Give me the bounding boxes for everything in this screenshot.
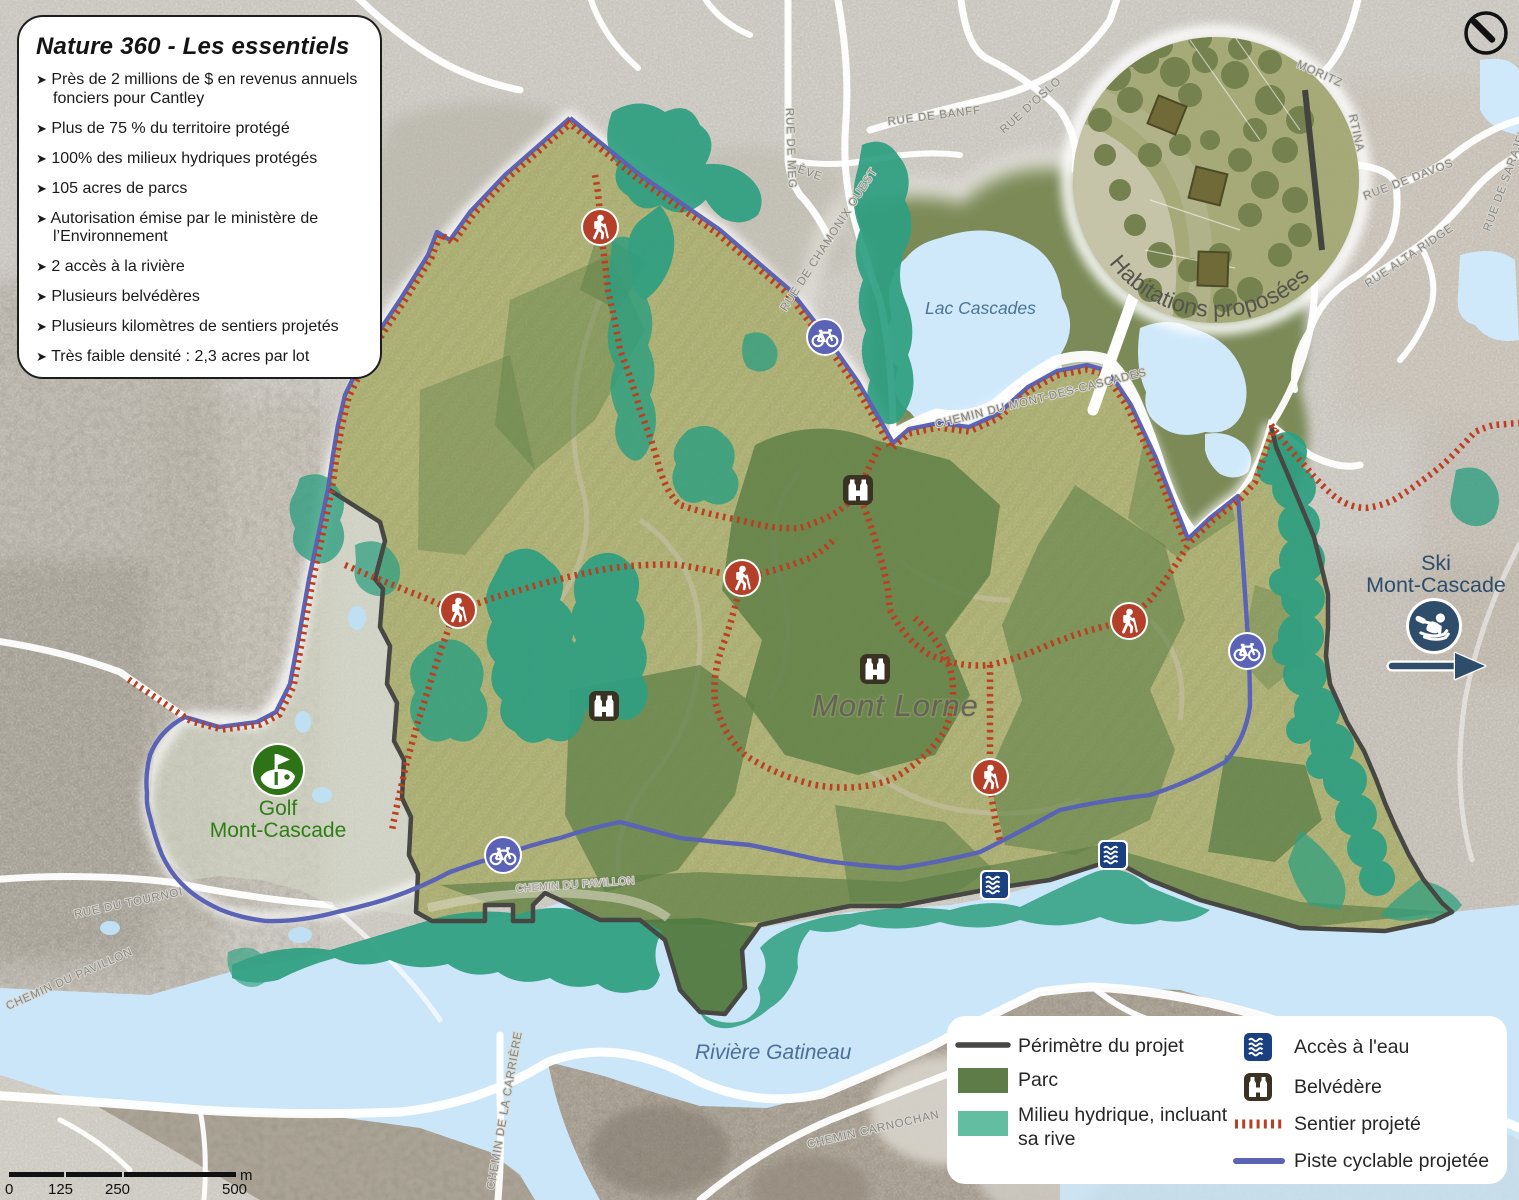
svg-text:Mont Lorne: Mont Lorne [812, 688, 979, 723]
svg-text:125: 125 [48, 1181, 73, 1198]
svg-text:250: 250 [105, 1181, 130, 1198]
svg-text:Golf: Golf [259, 797, 298, 820]
svg-text:Mont-Cascade: Mont-Cascade [210, 819, 347, 842]
svg-text:Rivière Gatineau: Rivière Gatineau [695, 1041, 852, 1064]
svg-text:Ski: Ski [1421, 551, 1451, 575]
svg-text:m: m [240, 1167, 253, 1184]
svg-text:Mont-Cascade: Mont-Cascade [1366, 573, 1506, 597]
svg-text:0: 0 [5, 1181, 13, 1198]
svg-text:Lac Cascades: Lac Cascades [925, 298, 1036, 318]
